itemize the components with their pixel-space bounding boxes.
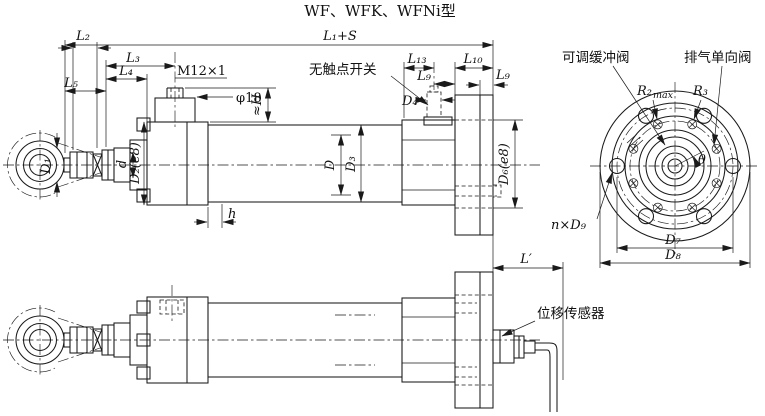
leader-line: [597, 173, 612, 219]
dim-n-d9: n×D₉: [551, 218, 587, 233]
dim-l2: L₂: [75, 29, 90, 44]
leader-line: [714, 66, 722, 145]
dim-l9-left: L₉: [416, 69, 432, 84]
cushion-valve-label: 可调缓冲阀: [562, 50, 630, 66]
dim-d2: D₂(e8): [128, 142, 143, 185]
drawing-page: WF、WFK、WFNi型: [0, 0, 765, 416]
dim-d1: D₁: [39, 158, 54, 175]
dim-l9-right: L₉: [495, 68, 511, 83]
displacement-sensor-label: 位移传感器: [537, 305, 605, 322]
dim-l10: L₁₀: [462, 52, 483, 67]
cylinder-technical-drawing: WF、WFK、WFNi型: [0, 0, 765, 416]
dim-d8: D₈: [664, 248, 681, 263]
dim-l-prime: L′: [519, 252, 532, 267]
dim-r2: R₂: [636, 84, 652, 99]
leader-line: [502, 321, 535, 336]
dim-m12: M12×1: [177, 64, 226, 79]
sensor-cable: [535, 343, 557, 412]
bottom-view: L′ 位移传感器: [3, 252, 605, 412]
dim-d4: D₄: [401, 94, 418, 109]
side-view: L₁+S L₂ L₃ L₄ L₅ M12×1 φ18: [3, 29, 540, 272]
dim-l5: L₅: [63, 76, 79, 91]
exhaust-valve-label: 排气单向阀: [684, 50, 752, 66]
dim-r3: R₃: [692, 84, 708, 99]
dim-h-spigot: h: [228, 207, 236, 222]
dim-r2-sub: max: [653, 90, 674, 101]
dim-d6: D₆(e8): [497, 143, 512, 186]
dim-d7: D₇: [664, 233, 681, 248]
drawing-title: WF、WFK、WFNi型: [304, 2, 456, 20]
displacement-sensor: [493, 330, 557, 412]
contactless-switch-label: 无触点开关: [309, 62, 377, 78]
dim-d3: D₃: [344, 156, 359, 173]
sensor-cable: [535, 350, 550, 412]
front-flange-bottom: [137, 285, 208, 383]
side-view-dimensions: L₁+S L₂ L₃ L₄ L₅ M12×1 φ18: [39, 29, 523, 228]
dim-h-height: ≈H: [250, 93, 265, 116]
dim-l1s: L₁+S: [322, 29, 357, 44]
end-view: θ 可调缓冲阀 排气单向阀 R₂ max R₃ n×D₉ D₇ D₈: [551, 50, 760, 268]
dim-theta: θ: [698, 153, 706, 168]
dim-l4: L₄: [118, 64, 133, 79]
dim-l13: L₁₃: [406, 52, 426, 67]
dim-d-bore: D: [323, 159, 338, 171]
